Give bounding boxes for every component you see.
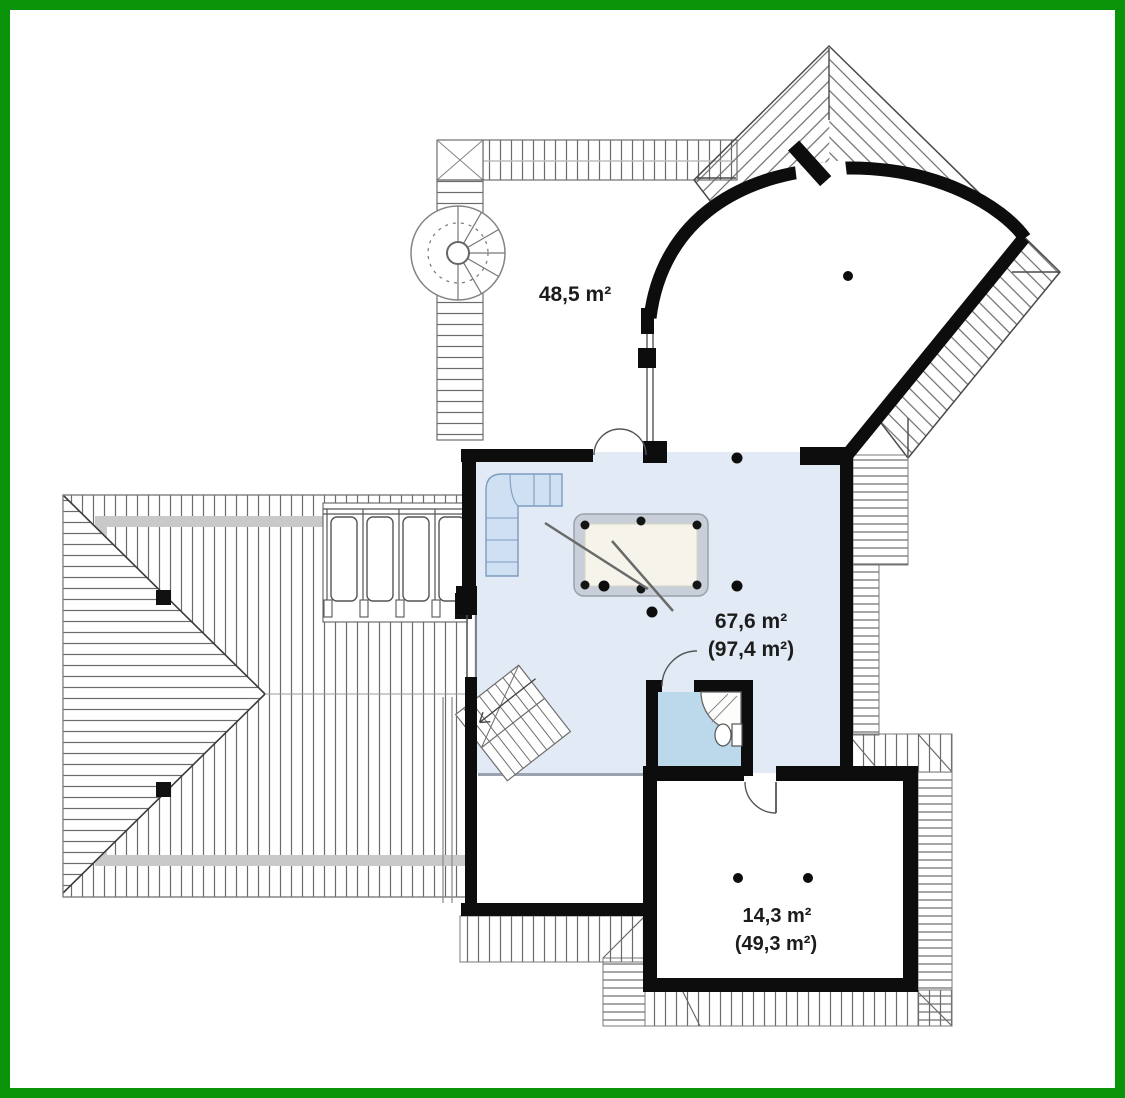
railing-panel (331, 517, 357, 601)
wall-pier (638, 348, 656, 368)
column-dot-icon (647, 607, 658, 618)
column-dot-icon (599, 581, 610, 592)
bottom-room (643, 766, 918, 992)
room-label-main: 67,6 m² (715, 610, 787, 633)
railing-foot (360, 600, 368, 617)
roof-hatch (853, 455, 908, 565)
toilet-tank (732, 724, 742, 746)
low-height-floor (478, 776, 650, 905)
railing-foot (396, 600, 404, 617)
wall (465, 677, 477, 916)
pocket (637, 517, 646, 526)
railing (323, 503, 472, 622)
column-dot-icon (803, 873, 813, 883)
billiard-felt (585, 524, 697, 586)
spiral-staircase-icon (411, 206, 505, 300)
railing-panel (367, 517, 393, 601)
pocket (581, 521, 590, 530)
room-label-attic: 48,5 m² (539, 283, 611, 306)
wall (643, 978, 918, 992)
pocket (581, 581, 590, 590)
wall-pier (456, 586, 477, 615)
column-dot-icon (732, 581, 743, 592)
gray-band (95, 516, 331, 527)
column-dot-icon (733, 873, 743, 883)
wall (903, 766, 918, 992)
wall (646, 680, 658, 776)
room-label-bottom: 14,3 m² (743, 905, 812, 927)
toilet-icon (715, 724, 731, 746)
roof-hatch (603, 958, 645, 1026)
railing-panel (403, 517, 429, 601)
roof-hatch (853, 565, 879, 735)
gray-band (95, 855, 467, 866)
wall (776, 766, 918, 781)
railing-foot (432, 600, 440, 617)
floor-plan: 48,5 m² 67,6 m² (97,4 m²) 14,3 m² (49,3 … (0, 0, 1125, 1098)
column-dot-icon (843, 271, 853, 281)
wall (840, 455, 853, 772)
wall-pier (641, 308, 654, 334)
pocket (693, 521, 702, 530)
chimney-icon (156, 590, 171, 605)
wall (643, 766, 744, 781)
wall (643, 766, 657, 992)
spiral-newel (447, 242, 469, 264)
railing-foot (324, 600, 332, 617)
pocket (693, 581, 702, 590)
roof-hatch (483, 140, 737, 180)
wall (461, 449, 593, 462)
roof-hatch (918, 772, 952, 1026)
wall (643, 441, 667, 463)
room-label-main-secondary: (97,4 m²) (708, 638, 794, 661)
chimney-icon (156, 782, 171, 797)
column-dot-icon (732, 453, 743, 464)
room-label-bottom-secondary: (49,3 m²) (735, 933, 817, 955)
wall (461, 903, 651, 916)
floor-plan-page: 48,5 m² 67,6 m² (97,4 m²) 14,3 m² (49,3 … (0, 0, 1125, 1098)
wall (741, 680, 753, 776)
